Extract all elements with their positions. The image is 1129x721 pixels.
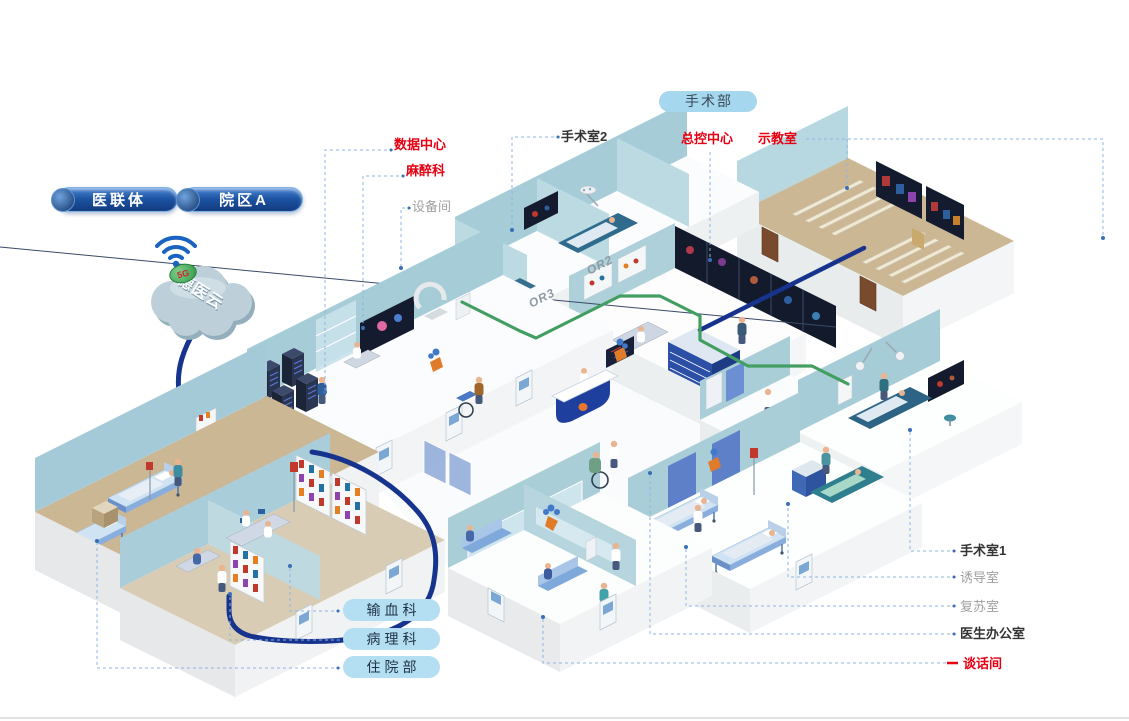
callout-doctor-office: 医生办公室 xyxy=(960,626,1025,642)
pill-pathology[interactable]: 病理科 xyxy=(343,628,440,650)
button-cap xyxy=(51,188,75,212)
callout-equipment-room: 设备间 xyxy=(412,199,451,215)
hospital-cloud-diagram: 医联体 院区A 德医云 5G 手术部 数据中心 麻醉科 设备间 手术室2 总控中… xyxy=(0,0,1129,721)
pill-inpatient[interactable]: 住院部 xyxy=(343,656,440,678)
callout-master-control: 总控中心 xyxy=(681,131,733,147)
callout-talk-room: 谈话间 xyxy=(963,656,1002,672)
button-cap xyxy=(176,188,200,212)
pill-blood-transfusion[interactable]: 输血科 xyxy=(343,599,440,621)
button-campus-a[interactable]: 院区A xyxy=(182,187,303,212)
callout-operating-room-1: 手术室1 xyxy=(960,543,1006,559)
pill-surgery-department[interactable]: 手术部 xyxy=(659,91,757,112)
callout-demo-classroom: 示教室 xyxy=(758,131,797,147)
callout-anesthesiology: 麻醉科 xyxy=(406,163,445,179)
button-label: 医联体 xyxy=(92,192,146,209)
callout-induction-room: 诱导室 xyxy=(960,570,999,586)
footer-divider xyxy=(0,717,1129,719)
button-label: 院区A xyxy=(219,192,269,209)
callout-data-center: 数据中心 xyxy=(394,137,446,153)
button-medical-alliance[interactable]: 医联体 xyxy=(57,187,178,212)
callout-operating-room-2: 手术室2 xyxy=(561,129,607,145)
callout-recovery-room: 复苏室 xyxy=(960,599,999,615)
